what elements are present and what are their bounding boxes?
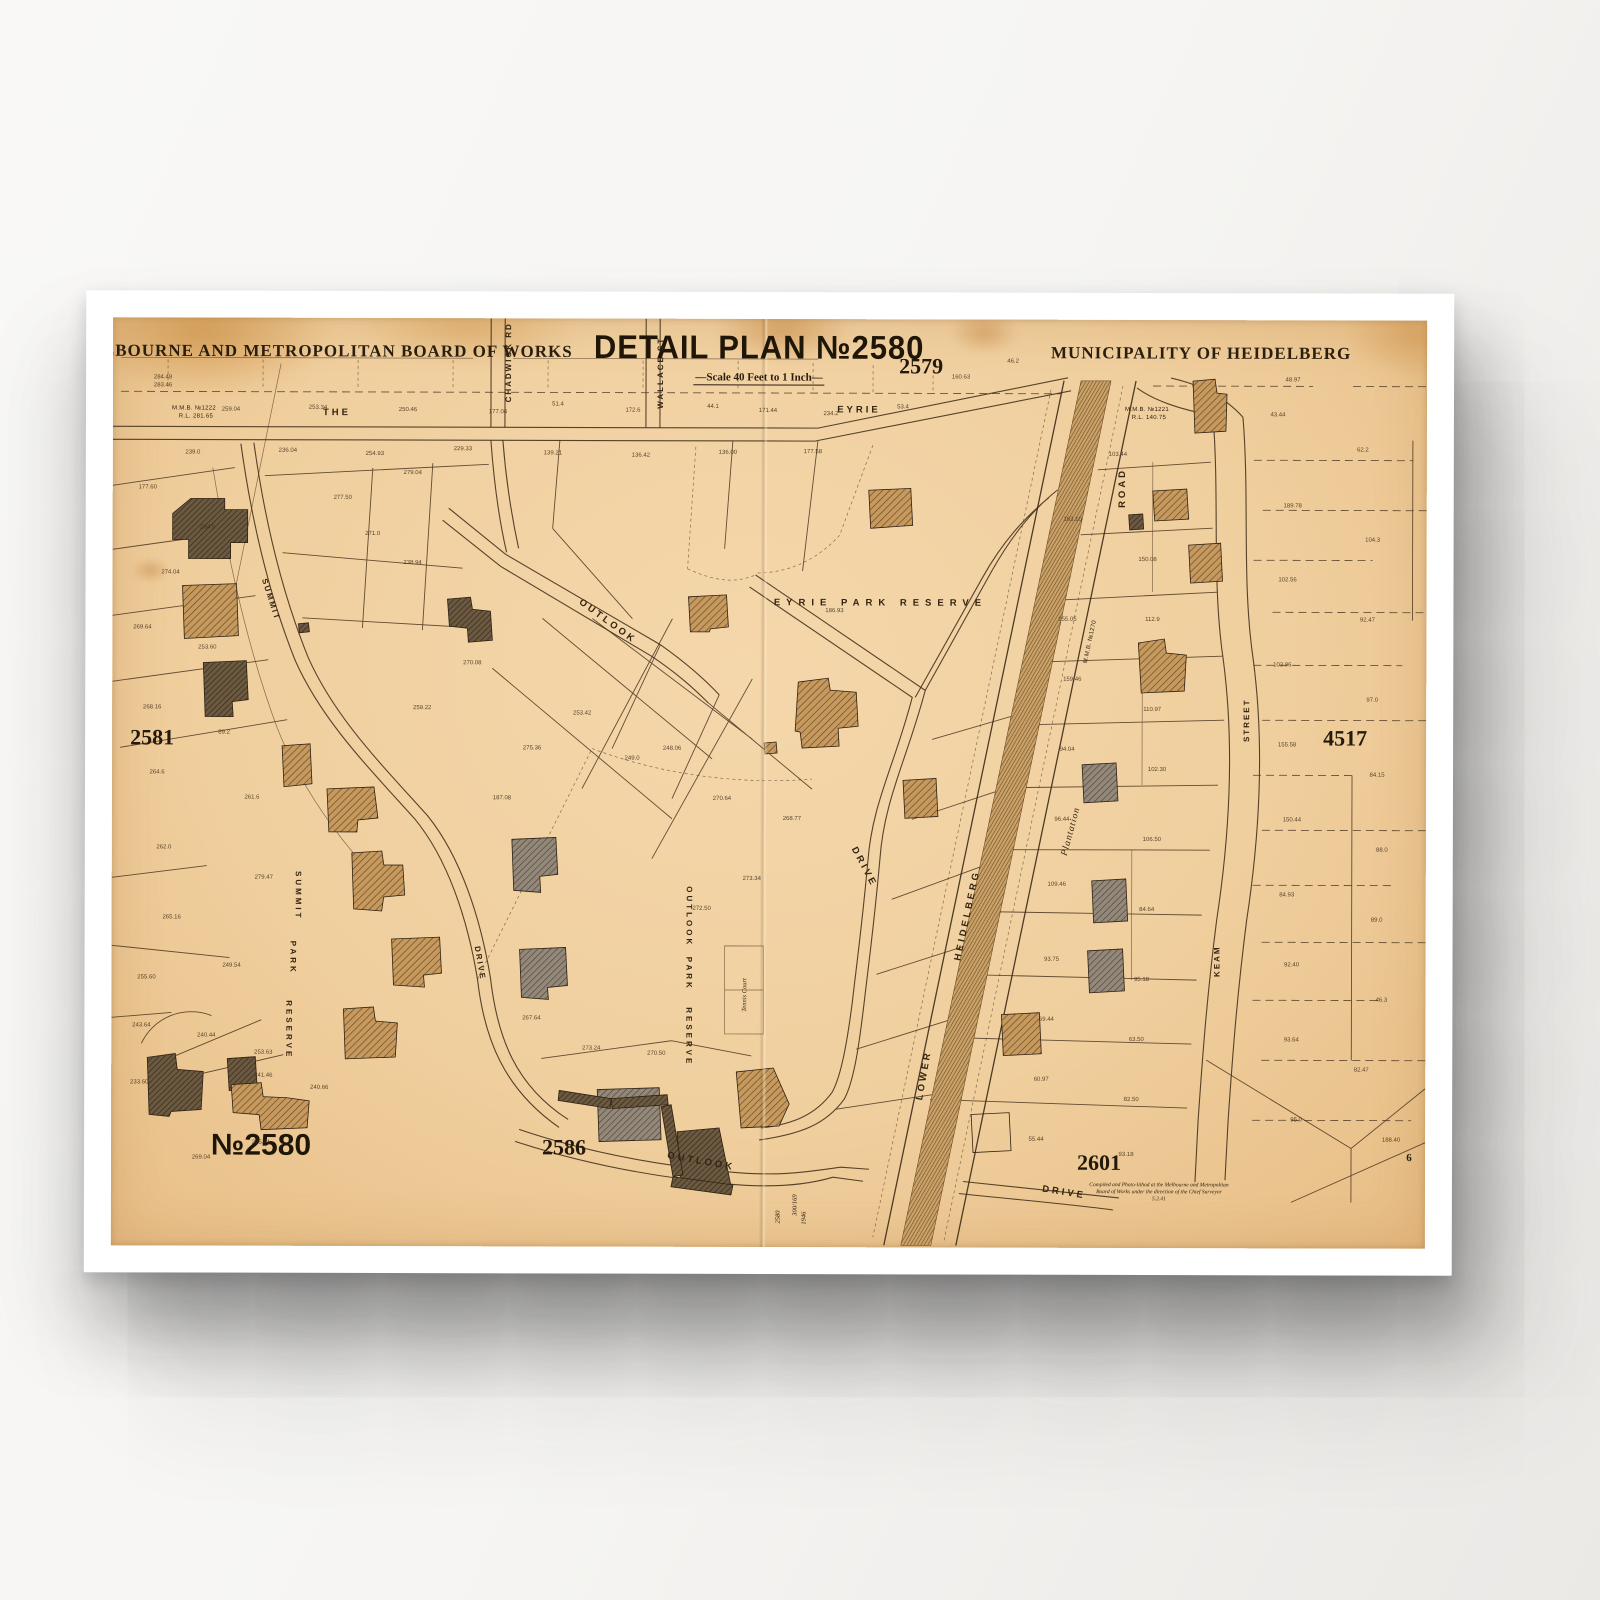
- map-label-street-outlook-upper: OUTLOOK: [577, 598, 638, 646]
- map-label-lot-143: 84.93: [1279, 892, 1294, 898]
- map-label-fold-note-b: 300/169: [793, 1194, 800, 1215]
- map-label-lot-48: 259.04: [222, 407, 240, 413]
- map-label-lot-136: 92.47: [1360, 618, 1375, 624]
- map-label-outlook-park-3: RESERVE: [684, 1007, 692, 1066]
- map-label-lot-87: 275.41: [252, 1140, 270, 1146]
- map-label-lot-93: 277.50: [334, 495, 352, 501]
- map-label-mmb-1222: M.M.B. №1222: [172, 405, 216, 411]
- map-label-mmb-1221: M.M.B. №1221: [1125, 407, 1169, 413]
- map-label-lot-60: 239.0: [185, 449, 200, 455]
- map-label-lot-49: 253.34: [309, 405, 327, 411]
- map-label-mark-6: 6: [1406, 1153, 1412, 1164]
- map-label-lot-94: 270.08: [463, 660, 481, 666]
- map-label-lot-118: 96.44: [1054, 817, 1069, 823]
- map-label-lot-115: 110.97: [1143, 707, 1161, 713]
- map-label-lot-108: 270.50: [647, 1051, 665, 1057]
- map-label-lot-70: 274.04: [161, 569, 179, 575]
- wall-background: MELBOURNE AND METROPOLITAN BOARD OF WORK…: [0, 0, 1600, 1600]
- map-label-lot-150: 188.40: [1382, 1138, 1400, 1144]
- map-label-lot-147: 93.64: [1284, 1037, 1299, 1043]
- map-label-lot-71: 269.64: [133, 624, 151, 630]
- map-label-lot-104: 272.50: [692, 906, 710, 912]
- map-label-street-outlook-lower: OUTLOOK: [666, 1151, 735, 1172]
- map-label-adj-plan-2601: 2601: [1077, 1152, 1121, 1174]
- map-label-lot-54: 44.1: [707, 404, 719, 410]
- map-label-lot-135: 102.56: [1278, 577, 1296, 583]
- map-label-lot-89: 240.66: [310, 1085, 328, 1091]
- map-label-outlook-park-1: OUTLOOK: [685, 886, 693, 947]
- map-label-lot-142: 88.0: [1376, 848, 1388, 854]
- map-label-lot-117: 102.30: [1148, 767, 1166, 773]
- map-label-lot-88: 241.46: [254, 1073, 272, 1079]
- map-label-lot-107: 273.24: [582, 1046, 600, 1052]
- map-label-lot-85: 233.60: [130, 1079, 148, 1085]
- map-label-summit-park-3: RESERVE: [284, 1000, 292, 1059]
- map-label-lot-97: 253.42: [573, 710, 591, 716]
- map-label-lot-114: 159.46: [1063, 677, 1081, 683]
- map-label-lot-110: 103.44: [1109, 452, 1127, 458]
- map-label-compiled-note-3: 5.2.41: [1152, 1197, 1166, 1203]
- map-label-lot-91: 238.94: [403, 560, 421, 566]
- map-label-lot-103: 273.34: [743, 876, 761, 882]
- map-label-lot-106: 267.64: [522, 1015, 540, 1021]
- map-label-street-heidelberg: HEIDELBERG: [953, 869, 982, 961]
- map-label-adj-plan-4517: 4517: [1323, 727, 1367, 749]
- map-label-lot-52: 51.4: [552, 401, 564, 407]
- map-label-lot-133: 189.78: [1284, 503, 1302, 509]
- map-label-lot-124: 69.44: [1039, 1017, 1054, 1023]
- map-label-lot-96: 275.36: [523, 745, 541, 751]
- map-label-street-the: THE: [323, 408, 351, 418]
- map-label-lot-98: 249.0: [625, 756, 640, 762]
- map-label-lot-111: 150.08: [1138, 557, 1156, 563]
- map-label-lot-46: 284.48: [154, 374, 172, 380]
- map-label-lot-55: 171.44: [759, 408, 777, 414]
- map-label-lot-105: 186.93: [825, 608, 843, 614]
- map-label-lot-119: 106.50: [1143, 837, 1161, 843]
- map-label-lot-134: 104.3: [1365, 538, 1380, 544]
- map-label-scale-note: —Scale 40 Feet to 1 Inch—: [693, 372, 824, 385]
- map-label-lot-86: 269.04: [192, 1154, 210, 1160]
- map-label-lot-83: 240.44: [197, 1033, 215, 1039]
- map-label-lot-80: 255.60: [137, 974, 155, 980]
- map-label-lot-129: 93.18: [1119, 1152, 1134, 1158]
- map-label-lot-92: 279.04: [404, 470, 422, 476]
- map-label-street-lower: LOWER: [915, 1050, 933, 1101]
- map-label-compiled-note-1: Compiled and Photo-lithod at the Melbour…: [1089, 1183, 1228, 1189]
- map-label-lot-75: 264.6: [150, 769, 165, 775]
- map-label-lot-112: 155.05: [1058, 617, 1076, 623]
- map-label-lot-84: 253.63: [254, 1050, 272, 1056]
- map-label-lot-122: 93.75: [1044, 957, 1059, 963]
- map-label-street-drive-upper: DRIVE: [849, 846, 878, 889]
- map-label-lot-74: 89.2: [218, 730, 230, 736]
- map-label-compiled-note-2: Board of Works under the direction of th…: [1096, 1190, 1222, 1196]
- map-label-lot-99: 187.08: [493, 795, 511, 801]
- map-label-street-summit-drive: DRIVE: [473, 946, 487, 981]
- map-label-lot-138: 97.0: [1366, 698, 1378, 704]
- map-label-lot-50: 250.46: [399, 407, 417, 413]
- map-label-lot-132: 62.2: [1357, 448, 1369, 454]
- map-label-lot-149: 95.0: [1290, 1117, 1302, 1123]
- map-label-summit-park-2: PARK: [288, 941, 296, 975]
- map-label-street-road: ROAD: [1118, 468, 1128, 508]
- map-label-adj-plan-2579: 2579: [899, 355, 943, 377]
- map-label-lot-66: 136.00: [719, 450, 737, 456]
- map-label-lot-56: 234.2: [823, 411, 838, 417]
- map-label-fold-note-a: 2580: [776, 1211, 783, 1224]
- map-label-lot-51: 177.04: [489, 409, 507, 415]
- map-label-lot-82: 243.64: [132, 1022, 150, 1028]
- map-label-lot-67: 177.58: [804, 449, 822, 455]
- map-label-lot-131: 43.44: [1270, 412, 1285, 418]
- map-label-lot-113: 112.9: [1145, 617, 1160, 623]
- map-label-lot-76: 261.6: [244, 795, 259, 801]
- map-label-lot-102: 268.77: [783, 816, 801, 822]
- map-label-lot-148: 82.47: [1354, 1068, 1369, 1074]
- map-label-plan-title: DETAIL PLAN №2580: [594, 330, 924, 364]
- map-label-lot-78: 279.47: [255, 875, 273, 881]
- map-label-mmb-1222-rl: R.L. 281.65: [179, 413, 213, 419]
- map-label-mmb-1221-rl: R.L. 140.75: [1132, 415, 1166, 421]
- map-label-lot-53: 172.6: [625, 408, 640, 414]
- map-label-adj-plan-2586: 2586: [542, 1136, 586, 1158]
- map-label-plantation: Plantation: [1061, 806, 1083, 857]
- map-label-lot-137: 103.96: [1273, 662, 1291, 668]
- map-label-street-summit: SUMMIT: [260, 578, 281, 622]
- map-label-lot-47: 283.46: [154, 382, 172, 388]
- map-label-lot-141: 150.44: [1283, 817, 1301, 823]
- map-label-municipality: MUNICIPALITY OF HEIDELBERG: [1051, 344, 1351, 362]
- map-label-adj-plan-2581: 2581: [130, 726, 174, 748]
- map-label-lot-79: 265.16: [162, 914, 180, 920]
- map-label-lot-127: 82.50: [1124, 1097, 1139, 1103]
- map-label-lot-68: 177.60: [139, 484, 157, 490]
- map-label-lot-128: 55.44: [1029, 1137, 1044, 1143]
- map-paper: MELBOURNE AND METROPOLITAN BOARD OF WORK…: [111, 317, 1427, 1248]
- map-label-lot-72: 253.60: [198, 645, 216, 651]
- map-label-lot-109: 163.10: [1064, 517, 1082, 523]
- map-label-street-wallace: WALLACE ST: [657, 337, 665, 409]
- map-label-lot-125: 63.50: [1129, 1037, 1144, 1043]
- map-label-lot-121: 84.64: [1139, 907, 1154, 913]
- map-label-lot-126: 60.97: [1034, 1077, 1049, 1083]
- map-label-lot-59: 46.2: [1007, 359, 1019, 365]
- map-label-street-eyrie: EYRIE: [837, 405, 881, 415]
- map-label-lot-69: 284.5: [200, 525, 215, 531]
- map-labels-layer: MELBOURNE AND METROPOLITAN BOARD OF WORK…: [111, 317, 1427, 1248]
- map-label-lot-130: 48.97: [1286, 377, 1301, 383]
- map-label-street-street: STREET: [1243, 698, 1251, 742]
- map-label-lot-146: 46.3: [1376, 998, 1388, 1004]
- map-label-lot-139: 155.58: [1278, 742, 1296, 748]
- map-label-lot-140: 84.15: [1370, 773, 1385, 779]
- map-label-outlook-park-2: PARK: [684, 957, 692, 991]
- map-label-summit-park-1: SUMMIT: [294, 871, 302, 921]
- map-label-lot-116: 94.04: [1060, 747, 1075, 753]
- map-label-street-keam: KEAM: [1213, 945, 1221, 977]
- map-label-eyrie-park-reserve: EYRIE PARK RESERVE: [774, 598, 987, 608]
- map-label-lot-57: 53.4: [897, 404, 909, 410]
- map-label-lot-64: 139.21: [544, 450, 562, 456]
- map-label-lot-63: 229.33: [454, 446, 472, 452]
- framed-map-canvas: MELBOURNE AND METROPOLITAN BOARD OF WORK…: [84, 290, 1455, 1276]
- map-label-lot-65: 136.42: [632, 453, 650, 459]
- map-label-lot-81: 249.54: [222, 963, 240, 969]
- map-label-lot-62: 254.93: [366, 451, 384, 457]
- map-label-lot-90: 271.0: [365, 531, 380, 537]
- map-label-street-chadwick: CHADWICK RD: [505, 322, 513, 402]
- map-label-lot-73: 268.16: [143, 704, 161, 710]
- map-label-street-drive-lower: DRIVE: [1041, 1185, 1086, 1201]
- map-label-lot-77: 262.0: [156, 844, 171, 850]
- map-label-lot-58: 160.63: [952, 374, 970, 380]
- map-label-lot-120: 109.46: [1048, 882, 1066, 888]
- map-label-lot-95: 259.22: [413, 705, 431, 711]
- map-label-lot-123: 95.18: [1134, 977, 1149, 983]
- map-label-lot-61: 236.04: [279, 448, 297, 454]
- map-label-lot-144: 89.0: [1371, 918, 1383, 924]
- map-label-lot-145: 92.40: [1284, 962, 1299, 968]
- map-label-fold-note-c: 1946: [802, 1212, 809, 1225]
- map-label-lot-100: 248.06: [663, 746, 681, 752]
- map-label-tennis-court: Tennis Court: [742, 978, 749, 1012]
- map-label-lot-101: 270.64: [713, 796, 731, 802]
- map-label-mmb-1270: M.M.B. №1270: [1083, 620, 1098, 664]
